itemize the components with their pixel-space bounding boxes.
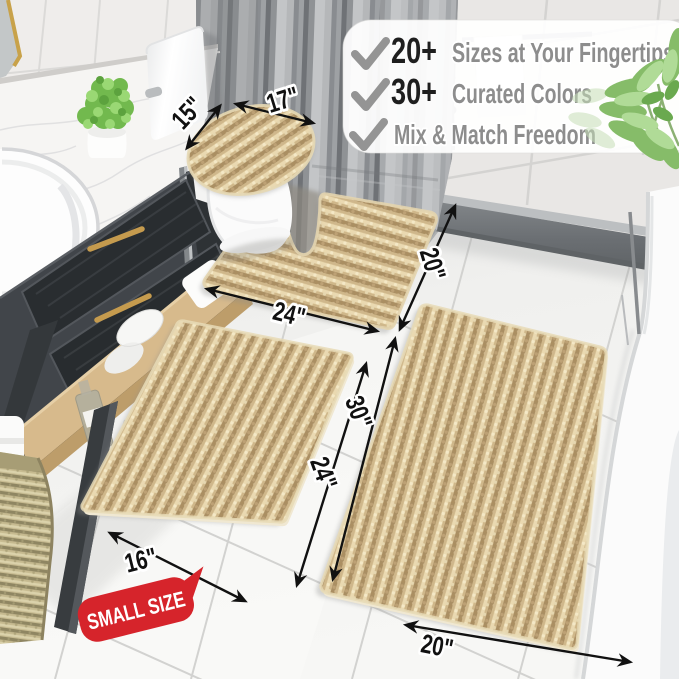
svg-text:30+: 30+ [391,71,437,112]
svg-text:Sizes at Your Fingertips: Sizes at Your Fingertips [452,37,674,68]
svg-text:20": 20" [418,630,455,665]
svg-text:Mix & Match Freedom: Mix & Match Freedom [394,119,596,150]
svg-text:Curated Colors: Curated Colors [452,78,592,109]
svg-text:20+: 20+ [391,30,437,71]
